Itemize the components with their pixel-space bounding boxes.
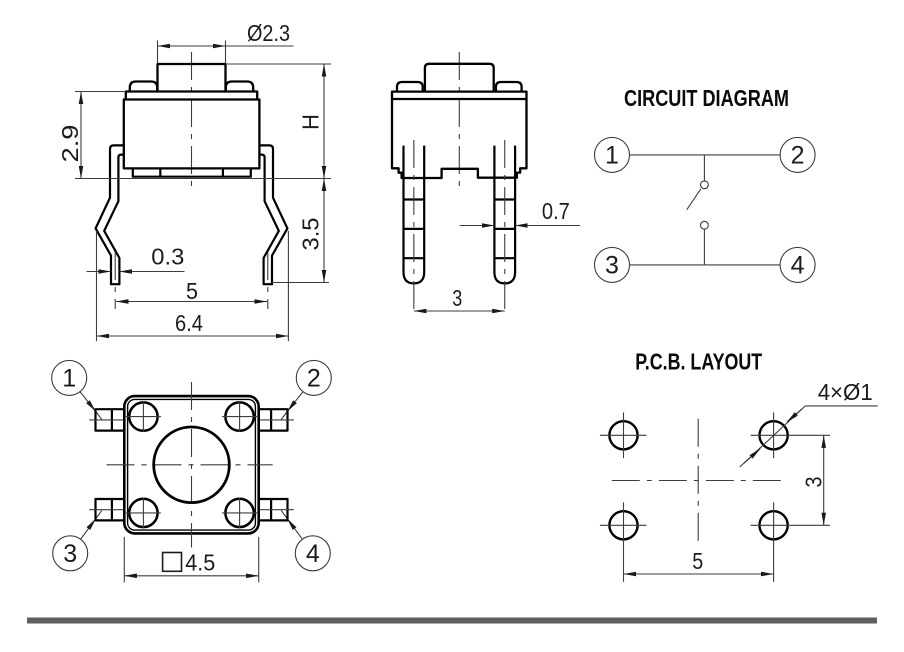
- svg-text:2.9: 2.9: [57, 125, 83, 163]
- svg-text:0.7: 0.7: [542, 198, 570, 224]
- svg-text:3: 3: [452, 285, 462, 311]
- svg-text:6.4: 6.4: [175, 310, 203, 336]
- svg-text:2: 2: [307, 365, 321, 393]
- svg-text:4.5: 4.5: [185, 550, 215, 576]
- svg-text:5: 5: [692, 548, 703, 574]
- svg-text:4: 4: [791, 252, 805, 280]
- svg-text:3: 3: [801, 477, 827, 488]
- svg-text:2: 2: [791, 142, 805, 170]
- svg-text:4: 4: [306, 540, 320, 568]
- svg-text:P.C.B. LAYOUT: P.C.B. LAYOUT: [635, 349, 762, 375]
- svg-text:4×Ø1: 4×Ø1: [818, 379, 873, 405]
- svg-text:H: H: [298, 114, 324, 130]
- svg-text:Ø2.3: Ø2.3: [247, 20, 290, 46]
- svg-text:5: 5: [186, 278, 198, 304]
- svg-text:1: 1: [62, 365, 76, 393]
- svg-text:3.5: 3.5: [298, 218, 324, 251]
- svg-text:1: 1: [605, 142, 619, 170]
- svg-text:3: 3: [605, 252, 619, 280]
- svg-text:CIRCUIT DIAGRAM: CIRCUIT DIAGRAM: [624, 85, 789, 111]
- svg-text:3: 3: [63, 540, 77, 568]
- svg-text:0.3: 0.3: [151, 244, 184, 270]
